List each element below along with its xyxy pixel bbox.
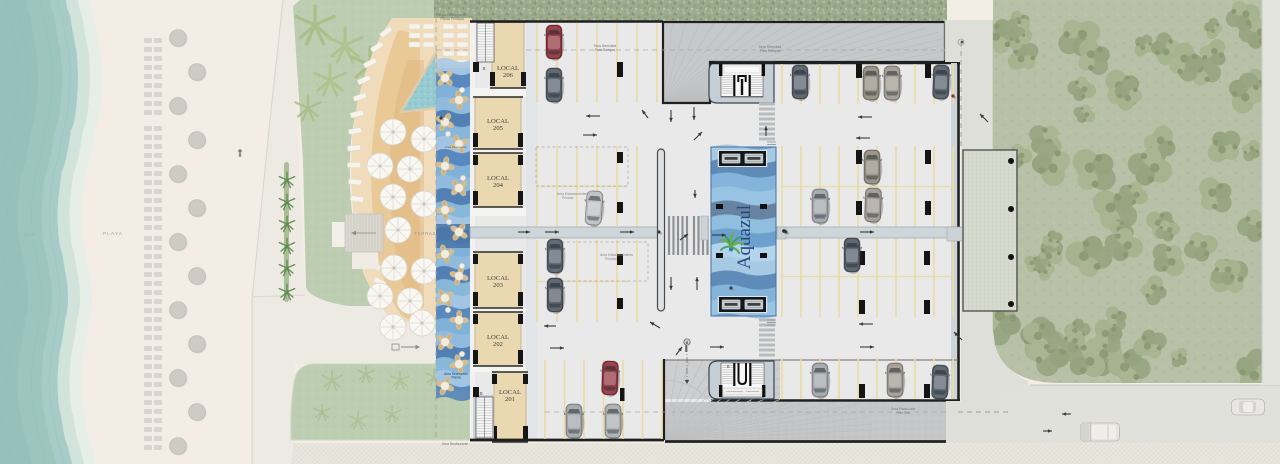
svg-text:LOCAL: LOCAL [487,118,509,125]
svg-text:205: 205 [493,125,504,132]
svg-text:B: B [686,340,689,345]
svg-text:Aquazul: Aquazul [734,205,755,269]
svg-text:Area Recreacion: Area Recreacion [445,145,468,149]
svg-text:201: 201 [505,396,515,403]
svg-text:Para Rampas: Para Rampas [595,48,616,52]
svg-text:S: S [479,391,482,396]
svg-text:Privado: Privado [562,196,574,200]
svg-text:LOCAL: LOCAL [487,275,509,282]
svg-text:Plan Vial: Plan Vial [896,411,910,415]
svg-text:LOCAL: LOCAL [499,389,521,396]
svg-text:203: 203 [493,282,504,289]
svg-text:Planta: Planta [451,376,460,380]
svg-text:Privado: Privado [605,257,617,261]
svg-text:S: S [482,66,485,71]
svg-text:Planta Principal: Planta Principal [440,17,464,21]
svg-text:Area Restaurante: Area Restaurante [442,442,469,446]
svg-text:204: 204 [493,182,504,189]
svg-text:206: 206 [503,72,514,79]
svg-text:LOCAL: LOCAL [497,65,519,72]
svg-text:Para Rampas: Para Rampas [760,49,781,53]
svg-text:MAR: MAR [24,232,36,237]
svg-text:LOCAL: LOCAL [487,175,509,182]
svg-text:LOCAL: LOCAL [487,334,509,341]
svg-text:202: 202 [493,341,503,348]
svg-text:PLAYA: PLAYA [103,231,123,236]
